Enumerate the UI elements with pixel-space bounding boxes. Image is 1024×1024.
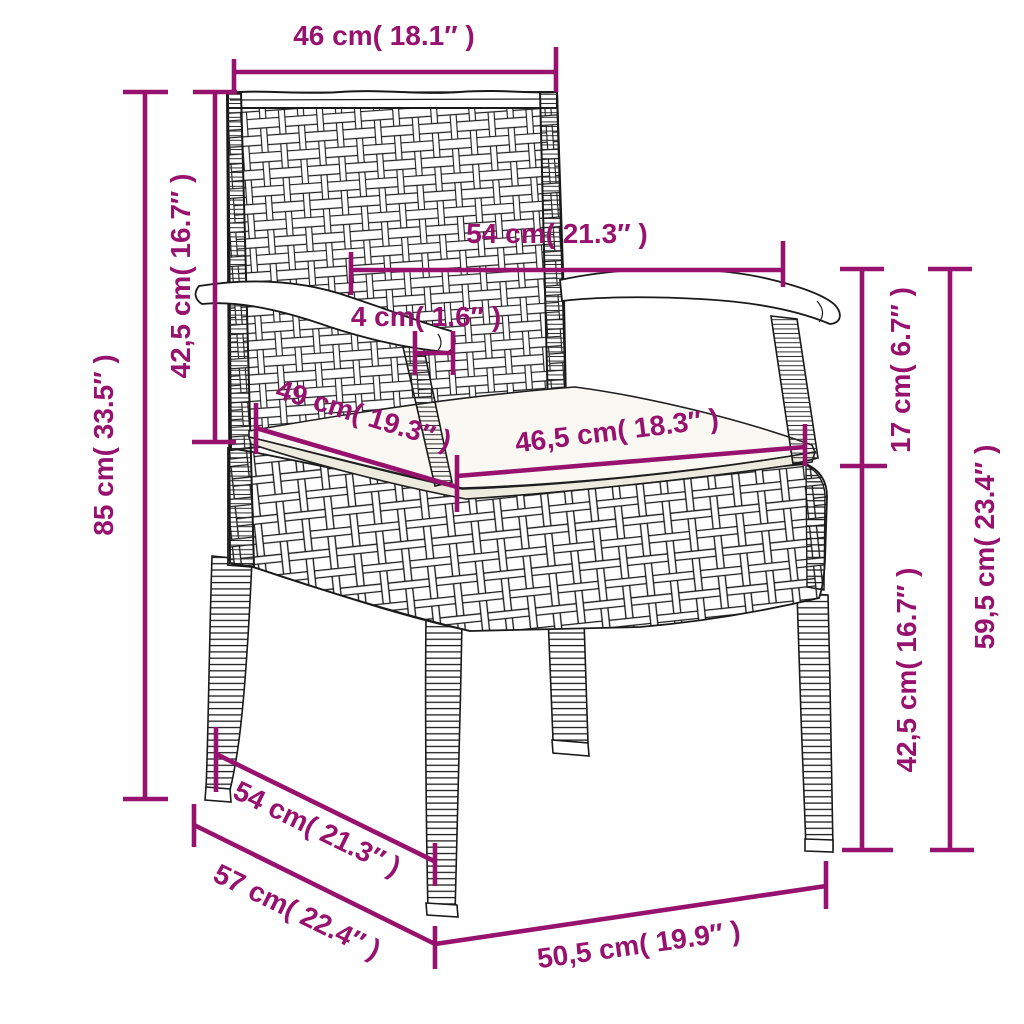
svg-text:85 cm( 33.5″ ): 85 cm( 33.5″ ) xyxy=(88,354,119,536)
svg-text:42,5 cm( 16.7″ ): 42,5 cm( 16.7″ ) xyxy=(891,568,922,773)
svg-text:54 cm( 21.3″ ): 54 cm( 21.3″ ) xyxy=(466,218,648,249)
svg-text:42,5 cm( 16.7″ ): 42,5 cm( 16.7″ ) xyxy=(165,174,196,379)
svg-text:17 cm( 6.7″ ): 17 cm( 6.7″ ) xyxy=(885,287,916,453)
svg-text:59,5 cm( 23.4″ ): 59,5 cm( 23.4″ ) xyxy=(969,445,1000,650)
svg-text:46 cm( 18.1″ ): 46 cm( 18.1″ ) xyxy=(293,20,475,51)
svg-text:4 cm( 1.6″ ): 4 cm( 1.6″ ) xyxy=(351,301,501,332)
